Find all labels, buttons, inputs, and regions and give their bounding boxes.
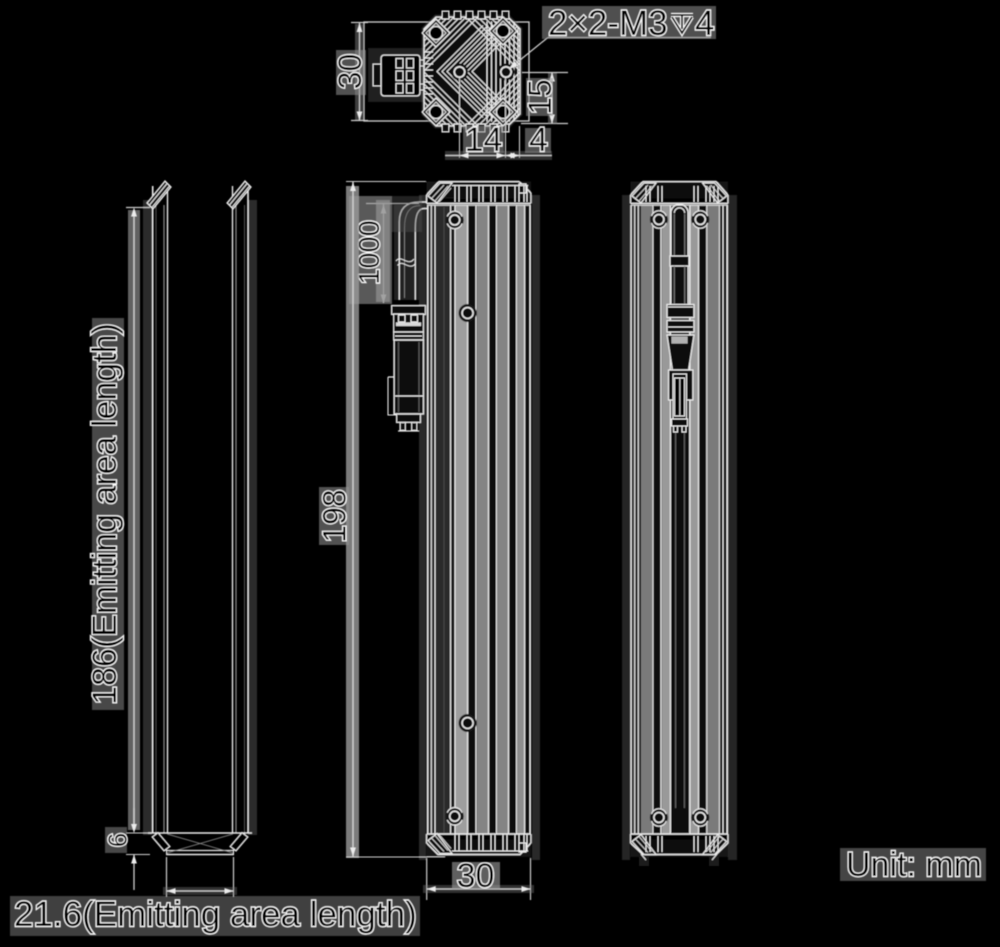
svg-text:4: 4: [529, 121, 548, 159]
svg-text:15: 15: [522, 79, 558, 115]
svg-text:4: 4: [695, 4, 714, 43]
svg-text:30: 30: [332, 54, 368, 90]
svg-text:198: 198: [317, 489, 353, 542]
svg-text:30: 30: [457, 857, 495, 895]
svg-text:6: 6: [103, 833, 133, 847]
svg-text:186(Emitting area length): 186(Emitting area length): [86, 323, 124, 705]
svg-text:21.6(Emitting area length): 21.6(Emitting area length): [14, 895, 417, 934]
svg-text:Unit: mm: Unit: mm: [846, 846, 982, 884]
svg-text:2×2-M3: 2×2-M3: [548, 4, 668, 43]
svg-text:14: 14: [465, 121, 503, 159]
